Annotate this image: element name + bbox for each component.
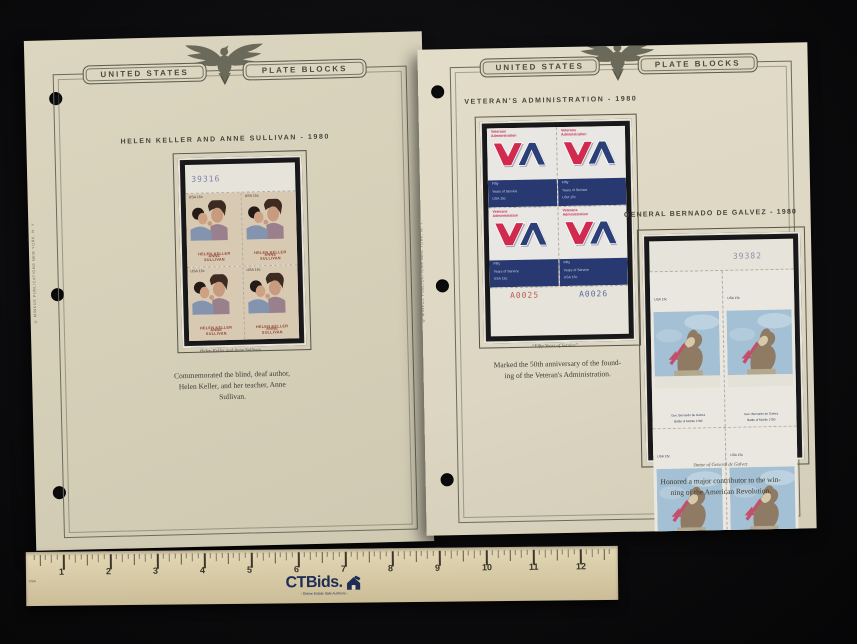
stamp-denomination: USA 15c	[246, 268, 260, 272]
stamp-row: USA 15c Gen. Bernardo de Galvez Battle o…	[650, 270, 797, 429]
keller-plate-number: 39316	[191, 174, 220, 184]
header-banner-united-states: UNITED STATES	[82, 62, 206, 84]
ruler-number: 2	[106, 566, 111, 576]
ruler-number: 8	[388, 563, 393, 573]
va-logo-art	[563, 138, 616, 169]
stamp-denomination: USA 15c	[190, 270, 204, 274]
punch-hole	[431, 85, 444, 98]
galvez-stamp: USA 15c Gen. Bernardo de Galvez Battle o…	[650, 271, 724, 428]
ruler-tick	[280, 552, 281, 557]
stamp-row: USA 15c HELEN KELLER ANNE SULLIVAN USA 1…	[187, 264, 299, 341]
stamp-denomination: USA 15c	[189, 196, 203, 200]
helen-keller-stamp: USA 15c HELEN KELLER ANNE SULLIVAN	[242, 265, 299, 339]
punch-hole	[441, 473, 454, 486]
ruler-tick	[151, 554, 152, 559]
va-stamp: Veterans Administration Fifty Years of S…	[557, 206, 628, 286]
ruler-tick	[163, 554, 164, 559]
ruler-tick	[33, 555, 34, 560]
ruler-tick	[433, 551, 434, 556]
galvez-plate-number: 39382	[733, 251, 762, 261]
stamp-agency-text: Veterans Administration	[492, 210, 518, 218]
ctbids-house-icon	[345, 575, 362, 590]
ruler-tick	[75, 555, 76, 563]
ruler-tick	[603, 549, 604, 560]
galvez-statue-art	[725, 273, 793, 424]
ruler-tick	[445, 551, 446, 556]
ruler-tick	[456, 551, 457, 556]
va-logo-art	[495, 219, 548, 250]
panel-line: Years of Service	[562, 188, 599, 193]
helen-keller-stamp: USA 15c HELEN KELLER ANNE SULLIVAN	[240, 191, 297, 265]
ruler-tick	[368, 552, 369, 563]
ruler-tick	[468, 550, 469, 555]
ruler-tick	[286, 552, 287, 560]
header-banner-united-states: UNITED STATES	[480, 56, 600, 77]
ruler-number: 10	[482, 562, 492, 572]
panel-line: Fifty	[492, 182, 529, 187]
ruler-tick	[333, 552, 334, 560]
ruler-tick	[497, 550, 498, 558]
ruler-tick	[597, 549, 598, 554]
album-page-va-galvez: © MINKUS PUBLICATIONS NEW YORK, N. Y. UN…	[417, 42, 816, 535]
ruler-tick	[221, 553, 222, 558]
ruler-tick	[86, 554, 87, 565]
ruler-tick	[51, 555, 52, 563]
stamp-denomination: USA 15c	[244, 194, 258, 198]
panel-line: Years of Service	[492, 189, 529, 194]
ruler-tick	[292, 552, 293, 557]
ctbids-tagline: - Online Estate Sale Auctions -	[284, 592, 365, 596]
ruler-tick	[122, 554, 123, 562]
va-mount-frame: Veterans Administration Fifty Years of S…	[475, 114, 641, 349]
va-blue-panel: Fifty Years of Service USA 15c	[559, 258, 628, 286]
ruler-number: 1	[59, 567, 64, 577]
va-plate-number-left: A0025	[490, 287, 560, 336]
ruler-tick	[527, 550, 528, 555]
ruler-number: 4	[200, 565, 205, 575]
ruler-tick	[539, 550, 540, 555]
ruler-tick	[257, 553, 258, 558]
ruler-tick	[304, 552, 305, 557]
ruler-tick	[92, 554, 93, 559]
ruler-tick	[268, 553, 269, 558]
va-blue-panel: Fifty Years of Service USA 15c	[557, 178, 626, 206]
galvez-stamp: USA 15c Gen. Bernardo de Galvez Battle o…	[721, 270, 796, 427]
ruler-tick	[327, 552, 328, 557]
header-left-label: UNITED STATES	[495, 62, 584, 73]
ruler-tick	[351, 552, 352, 557]
panel-line: Fifty	[493, 262, 530, 267]
ruler-tick	[133, 554, 134, 565]
ruler-tick	[186, 553, 187, 558]
galvez-description: Honored a major contributor to the win- …	[638, 474, 804, 499]
galvez-plate-block: 39382 USA 15c Gen. Bernardo de Galvez Ba…	[649, 239, 797, 456]
ruler-tick	[239, 553, 240, 561]
helen-keller-stamp: USA 15c HELEN KELLER ANNE SULLIVAN	[186, 193, 242, 267]
ctbids-logo-text: CTBids.	[285, 574, 342, 593]
ruler-tick	[544, 550, 545, 558]
ruler-tick	[474, 550, 475, 558]
ruler-tick	[462, 551, 463, 562]
header-right-label: PLATE BLOCKS	[655, 59, 741, 70]
stamp-row: Veterans Administration Fifty Years of S…	[487, 126, 626, 208]
ruler-tick	[480, 550, 481, 555]
panel-line: Fifty	[561, 180, 598, 185]
ruler-tick	[145, 554, 146, 562]
ctbids-brand: CTBids. - Online Estate Sale Auctions -	[254, 573, 394, 597]
stamp-denomination: USA 15c	[727, 297, 740, 301]
album-page-helen-keller: © MINKUS PUBLICATIONS NEW YORK, N. Y. UN…	[24, 31, 434, 551]
ruler-tick	[174, 554, 175, 559]
ruler-tick	[492, 550, 493, 555]
ruler-tick	[169, 554, 170, 562]
ruler-tick	[227, 553, 228, 564]
stamp-agency-text: Veterans Administration	[491, 130, 517, 138]
stamp-name-line: ANNE SULLIVAN	[197, 254, 231, 262]
va-plate-numbers: A0025 A0026	[490, 286, 629, 337]
va-stamp-mount: Veterans Administration Fifty Years of S…	[480, 119, 636, 344]
ruler-tick	[515, 550, 516, 555]
ruler-tick	[403, 551, 404, 559]
helen-keller-stamp: USA 15c HELEN KELLER ANNE SULLIVAN	[187, 267, 243, 341]
ruler-tick	[427, 551, 428, 559]
ruler-tick	[380, 551, 381, 559]
ruler-tick	[192, 553, 193, 561]
header-right-label: PLATE BLOCKS	[262, 64, 348, 75]
stamp-name-line: ANNE SULLIVAN	[199, 328, 233, 336]
panel-line: USA 15c	[494, 277, 531, 282]
ruler-tick	[80, 555, 81, 560]
panel-line: Fifty	[563, 260, 600, 265]
va-plate-block: Veterans Administration Fifty Years of S…	[487, 126, 629, 337]
ruler-tick	[321, 552, 322, 563]
va-selvage: A0025 A0026	[490, 285, 629, 337]
ruler-tick	[386, 551, 387, 556]
ruler-tick	[409, 551, 410, 556]
stamp-agency-text: Veterans Administration	[560, 129, 586, 137]
wooden-ruler: 123456789101112 USA CTBids. - Online Est…	[26, 546, 619, 606]
ruler-tick	[609, 549, 610, 554]
ruler-tick	[415, 551, 416, 562]
ruler-tick	[356, 552, 357, 560]
photo-of-stamp-album-pages: © MINKUS PUBLICATIONS NEW YORK, N. Y. UN…	[0, 0, 857, 644]
stamp-row: Veterans Administration Fifty Years of S…	[488, 205, 628, 288]
ruler-tick	[521, 550, 522, 558]
ruler-tick	[398, 551, 399, 556]
ruler-tick	[362, 552, 363, 557]
ruler-tick	[216, 553, 217, 561]
header-banner-plate-blocks: PLATE BLOCKS	[242, 59, 366, 81]
va-stamp: Veterans Administration Fifty Years of S…	[488, 207, 558, 287]
ruler-tick	[568, 549, 569, 557]
ruler-tick	[104, 554, 105, 559]
ruler-number: 9	[435, 563, 440, 573]
ruler-number: 11	[529, 562, 539, 572]
stamp-name-line: ANNE SULLIVAN	[255, 327, 289, 335]
va-logo-art	[564, 218, 617, 249]
ruler-tick	[274, 552, 275, 563]
ruler-number: 7	[341, 564, 346, 574]
keller-mount-frame: 39316 USA 15c HELEN KELLER ANNE SULLIVAN…	[173, 150, 312, 353]
ruler-tick	[45, 555, 46, 560]
ruler-tick	[127, 554, 128, 559]
ruler-tick	[509, 550, 510, 561]
ruler-tick	[309, 552, 310, 560]
header-left-label: UNITED STATES	[100, 68, 189, 79]
stamp-row: USA 15c HELEN KELLER ANNE SULLIVAN USA 1…	[186, 191, 298, 267]
va-logo-art	[493, 139, 546, 170]
ruler-tick	[245, 553, 246, 558]
va-stamp: Veterans Administration Fifty Years of S…	[555, 126, 626, 206]
ruler-tick	[98, 554, 99, 562]
panel-line: Years of Service	[494, 269, 531, 274]
keller-stamp-mount: 39316 USA 15c HELEN KELLER ANNE SULLIVAN…	[178, 155, 307, 348]
galvez-selvage: 39382	[649, 239, 794, 273]
publisher-imprint: © MINKUS PUBLICATIONS NEW YORK, N. Y.	[31, 222, 37, 323]
va-plate-number-right: A0026	[559, 286, 629, 335]
ruler-tick	[116, 554, 117, 559]
ruler-tick	[57, 555, 58, 560]
galvez-stamp-mount: 39382 USA 15c Gen. Bernardo de Galvez Ba…	[642, 231, 804, 462]
ruler-tick	[233, 553, 234, 558]
panel-line: USA 15c	[563, 275, 600, 280]
keller-portrait-art	[243, 199, 288, 240]
stamp-agency-text: Veterans Administration	[562, 209, 588, 217]
ruler-tick	[450, 551, 451, 559]
ruler-tick	[39, 555, 40, 566]
ruler-origin-label: USA	[29, 580, 36, 583]
galvez-mount-frame: 39382 USA 15c Gen. Bernardo de Galvez Ba…	[637, 226, 810, 467]
ruler-tick	[503, 550, 504, 555]
stamp-denomination: USA 15c	[657, 455, 670, 459]
panel-line: USA 15c	[562, 195, 599, 200]
ruler-tick	[374, 551, 375, 556]
keller-portrait-art	[190, 274, 235, 315]
ruler-tick	[562, 549, 563, 554]
ruler-tick	[198, 553, 199, 558]
ruler-number: 5	[247, 565, 252, 575]
keller-selvage: 39316	[185, 162, 296, 194]
keller-portrait-art	[188, 200, 233, 241]
stamp-name-line: ANNE SULLIVAN	[253, 253, 287, 261]
keller-description: Commemorated the blind, deaf author, Hel…	[142, 368, 323, 405]
va-stamp: Veterans Administration Fifty Years of S…	[487, 127, 557, 207]
ruler-tick	[315, 552, 316, 557]
ruler-tick	[69, 555, 70, 560]
stamp-denomination: USA 15c	[654, 298, 667, 302]
ruler-tick	[210, 553, 211, 558]
ruler-number: 6	[294, 564, 299, 574]
ruler-tick	[556, 550, 557, 561]
ruler-tick	[586, 549, 587, 554]
punch-hole	[436, 279, 449, 292]
keller-portrait-art	[245, 273, 290, 314]
va-blue-panel: Fifty Years of Service USA 15c	[488, 179, 557, 207]
panel-line: USA 15c	[492, 197, 529, 202]
panel-line: Years of Service	[563, 268, 600, 273]
keller-plate-block: 39316 USA 15c HELEN KELLER ANNE SULLIVAN…	[185, 162, 299, 341]
ruler-tick	[180, 553, 181, 564]
header-banner-plate-blocks: PLATE BLOCKS	[638, 53, 758, 74]
stamp-denomination: USA 15c	[730, 454, 743, 458]
ruler-tick	[421, 551, 422, 556]
ruler-number: 12	[576, 561, 586, 571]
va-blue-panel: Fifty Years of Service USA 15c	[489, 259, 558, 287]
ruler-number: 3	[153, 566, 158, 576]
ruler-tick	[550, 550, 551, 555]
ruler-tick	[339, 552, 340, 557]
va-description: Marked the 50th anniversary of the found…	[457, 357, 657, 383]
ruler-tick	[139, 554, 140, 559]
galvez-statue-art	[653, 274, 721, 425]
ruler-tick	[263, 553, 264, 561]
ruler-tick	[574, 549, 575, 554]
ruler-tick	[591, 549, 592, 557]
